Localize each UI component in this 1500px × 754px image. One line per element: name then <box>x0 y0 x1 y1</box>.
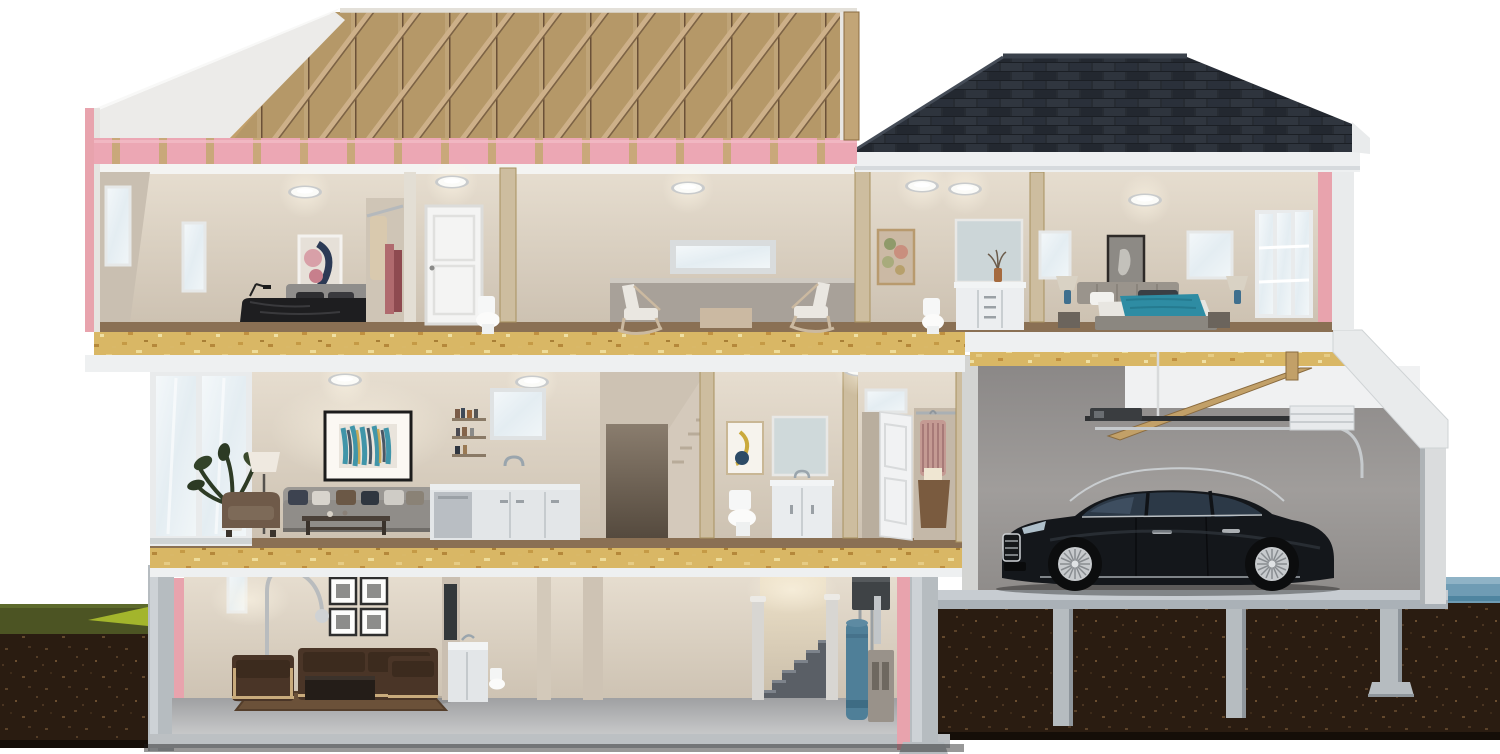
garage <box>938 330 1448 609</box>
house-cutaway-illustration <box>0 0 1500 754</box>
entry <box>858 372 958 540</box>
garage-slab-edge <box>938 600 1448 609</box>
garage-right-column-shade <box>1420 428 1425 604</box>
soil-left <box>0 634 148 744</box>
concrete-pier-2 <box>1226 606 1246 718</box>
bed2-base <box>1095 316 1217 330</box>
basement-window-glow <box>210 574 290 626</box>
car-door-handle <box>1222 529 1240 533</box>
soil-right-bottom-fade <box>938 732 1500 740</box>
foundation-bottom-shadow <box>144 744 964 752</box>
entry-closet <box>914 408 958 540</box>
ceiling-light <box>279 166 331 218</box>
main-floor-osb-band <box>150 548 965 568</box>
stair-hallway <box>600 372 712 538</box>
hallway-opening <box>606 424 668 538</box>
water-heater <box>846 619 868 720</box>
grass-top-edge <box>0 604 148 608</box>
stair-railing-wall-right <box>824 594 840 700</box>
main-floor <box>85 342 972 546</box>
ridge-board <box>340 8 857 13</box>
right-wall-insulation-edge <box>1318 170 1332 322</box>
car-rear-wheel <box>1245 537 1299 591</box>
bedroom2-window-right <box>1188 232 1232 278</box>
soil-right <box>938 600 1500 738</box>
closet-wall-post <box>404 172 416 322</box>
door-transom-window <box>866 390 906 412</box>
attic-cut-post <box>840 12 859 140</box>
bedroom-window <box>183 223 205 291</box>
shingle-roof <box>855 56 1370 172</box>
rolled-up-garage-door <box>1290 406 1354 430</box>
basement-wall-corner <box>583 572 603 700</box>
upper-floor-osb-band <box>94 332 965 355</box>
furnace <box>868 650 894 722</box>
bedroom-artwork <box>299 236 341 292</box>
garage-ceiling-band <box>965 330 1360 352</box>
wall-post-osb <box>700 358 714 538</box>
wall-post-osb <box>855 168 870 322</box>
hanging-skirt <box>918 480 950 528</box>
hanging-blouse <box>924 468 942 480</box>
door-handle <box>430 266 435 271</box>
foundation-wall-left-face <box>150 565 158 751</box>
stair-railing-wall-left <box>750 596 766 700</box>
hanging-garment-red <box>394 250 402 312</box>
bathroom-artwork <box>727 422 763 474</box>
horse-artwork <box>1108 236 1144 286</box>
bedroom2-window-left <box>1040 232 1070 278</box>
living-room-artwork <box>325 412 411 480</box>
bed-duvet <box>240 298 374 322</box>
bedroom2-multipane-windows <box>1255 210 1313 318</box>
wall-tv <box>444 584 457 640</box>
powder-bathroom <box>700 358 858 538</box>
hanging-garment-pink <box>385 244 394 314</box>
vanity-cabinets <box>954 282 1026 330</box>
roof-fascia-right <box>1352 122 1370 154</box>
gray-sofa <box>283 487 435 532</box>
bathroom-mirror <box>773 417 827 475</box>
flue-pipe <box>874 596 881 644</box>
loft-side-table <box>700 308 752 328</box>
car-front-wheel <box>1048 537 1102 591</box>
loft-slit-window <box>676 246 770 268</box>
framed-print <box>330 609 356 635</box>
left-wall-insulation-edge <box>85 108 94 332</box>
right-exterior-wall <box>1332 166 1354 330</box>
wall-post-osb <box>500 168 516 322</box>
framed-print <box>361 609 387 635</box>
garage-left-wall <box>962 356 978 592</box>
floral-artwork <box>878 230 914 284</box>
half-wall-cap <box>610 278 858 283</box>
soil-left-bottom-fade <box>0 740 148 748</box>
framed-print <box>330 578 356 604</box>
ceiling-light <box>1119 174 1171 226</box>
basement-coffee-table <box>305 676 375 700</box>
attic-floor-insulation <box>94 138 857 164</box>
utility-sink <box>448 635 488 702</box>
ceiling-light <box>662 162 714 214</box>
concrete-pier-1 <box>1053 606 1073 726</box>
bathroom-vanity <box>770 471 834 538</box>
bedroom-window <box>106 187 130 265</box>
water-deep-streak <box>1446 596 1500 601</box>
leather-armchair-left <box>232 655 294 701</box>
upper-floor-rim-board <box>94 355 965 372</box>
hanging-coat <box>370 216 387 280</box>
basement-post <box>537 570 551 700</box>
kitchen-window <box>492 390 544 438</box>
upper-closet <box>366 198 404 322</box>
upper-floor <box>94 156 1354 334</box>
garage-osb-joists <box>970 352 1360 366</box>
leather-armchair-right <box>388 656 438 700</box>
vanity-mirror <box>956 220 1022 282</box>
main-floor-rim-board <box>150 568 965 577</box>
main-floor-structure-band <box>150 536 965 577</box>
framed-print <box>361 578 387 604</box>
ground-left <box>0 604 148 748</box>
